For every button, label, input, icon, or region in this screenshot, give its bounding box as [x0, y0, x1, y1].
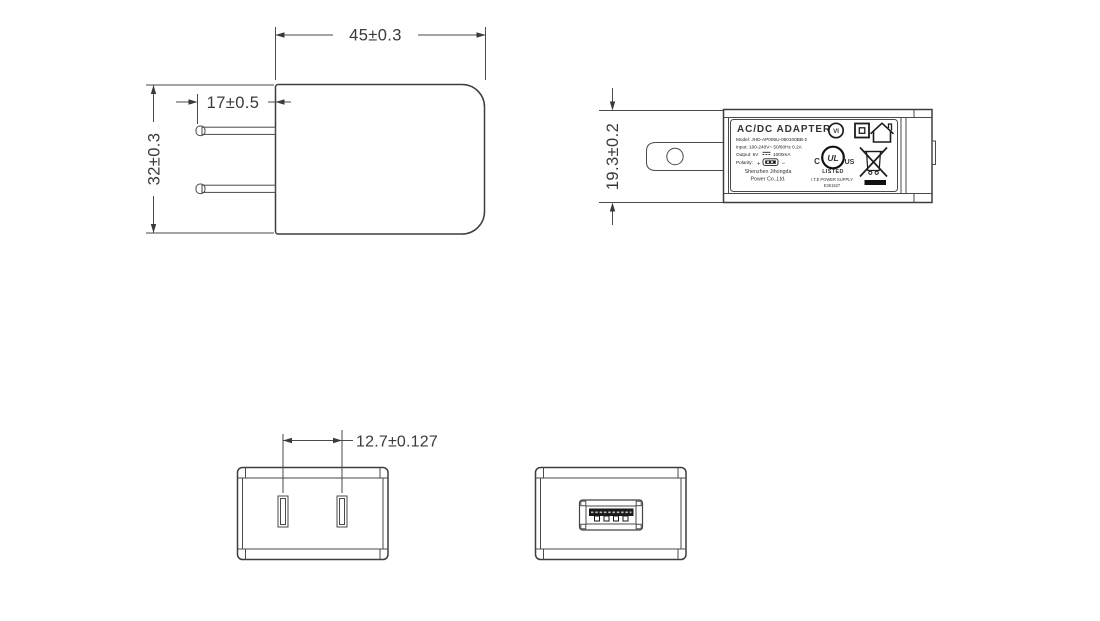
efficiency-vi-text: VI	[833, 128, 839, 135]
plug-face-view: 12.7±0.127	[238, 430, 438, 560]
polarity-minus: −	[782, 161, 786, 167]
ul-listed-mark: UL C US LISTED I.T.E POWER SUPPLY E36152…	[811, 147, 855, 188]
dim-body-width-text: 45±0.3	[349, 27, 402, 45]
plug-prong-bottom	[196, 184, 276, 194]
usb-port	[580, 500, 643, 530]
arrowhead	[151, 224, 156, 233]
polarity-plus: +	[757, 162, 761, 168]
weee-bar	[865, 180, 887, 185]
arrowhead	[276, 99, 285, 104]
ul-file-number: E361527	[824, 183, 841, 188]
plug-prong-top	[196, 126, 276, 136]
rating-label: AC/DC ADAPTER Model: JHD-AP006U-050100BB…	[731, 120, 898, 192]
prong-hole	[667, 148, 683, 164]
arrowhead	[610, 102, 615, 111]
dim-pin-pitch-text: 12.7±0.127	[356, 434, 438, 451]
technical-drawing-page: 45±0.3 17±0.5 32±0.3	[0, 0, 1100, 621]
dimension-pin-pitch: 12.7±0.127	[283, 430, 438, 493]
prong-slot-left	[278, 496, 288, 527]
adapter-drawing-svg: 45±0.3 17±0.5 32±0.3	[0, 0, 1100, 621]
dimension-body-thickness: 19.3±0.2	[599, 88, 723, 225]
label-company-2: Power Co.,Ltd.	[750, 177, 785, 183]
dimension-prong-length: 17±0.5	[176, 94, 291, 124]
arrowhead	[477, 32, 486, 37]
plug-face-outline	[238, 468, 389, 560]
label-model: Model: JHD-AP006U-050100BB-2	[736, 137, 808, 142]
weee-bin-icon	[860, 148, 887, 186]
label-title: AC/DC ADAPTER	[737, 124, 831, 135]
arrowhead	[189, 99, 198, 104]
arrowhead	[151, 85, 156, 94]
ul-c: C	[814, 157, 820, 166]
plug-prong-side	[647, 143, 725, 171]
ul-listed: LISTED	[822, 169, 844, 175]
side-view: 45±0.3 17±0.5 32±0.3	[146, 27, 486, 235]
prong-slot-right	[337, 496, 347, 527]
label-company-1: Shenzhen Jihongda	[745, 169, 792, 175]
label-input: Input: 100-240V~ 50/60Hz 0.2A	[736, 145, 803, 150]
ul-ite-power-supply: I.T.E POWER SUPPLY	[811, 177, 853, 182]
arrowhead	[276, 32, 285, 37]
dim-prong-length-text: 17±0.5	[207, 94, 260, 112]
usb-contact-pins	[595, 516, 629, 521]
usb-plug-icon	[763, 159, 778, 166]
ul-letters: UL	[827, 153, 838, 163]
adapter-body-outline	[276, 85, 485, 235]
dim-body-height-text: 32±0.3	[146, 133, 164, 186]
dc-symbol-icon	[763, 152, 771, 154]
ul-us: US	[845, 159, 855, 166]
arrowhead	[283, 438, 292, 443]
arrowhead	[610, 203, 615, 212]
dim-body-thickness-text: 19.3±0.2	[604, 123, 622, 190]
label-polarity: Polarity:	[736, 160, 753, 165]
arrowhead	[333, 438, 342, 443]
top-view: 19.3±0.2 AC/DC ADAPTER Model: JHD-AP006U…	[599, 88, 936, 225]
dimension-body-width: 45±0.3	[276, 27, 486, 81]
usb-face-view	[536, 468, 687, 560]
indoor-use-icon	[871, 123, 894, 142]
class2-insulation-icon	[855, 124, 869, 138]
